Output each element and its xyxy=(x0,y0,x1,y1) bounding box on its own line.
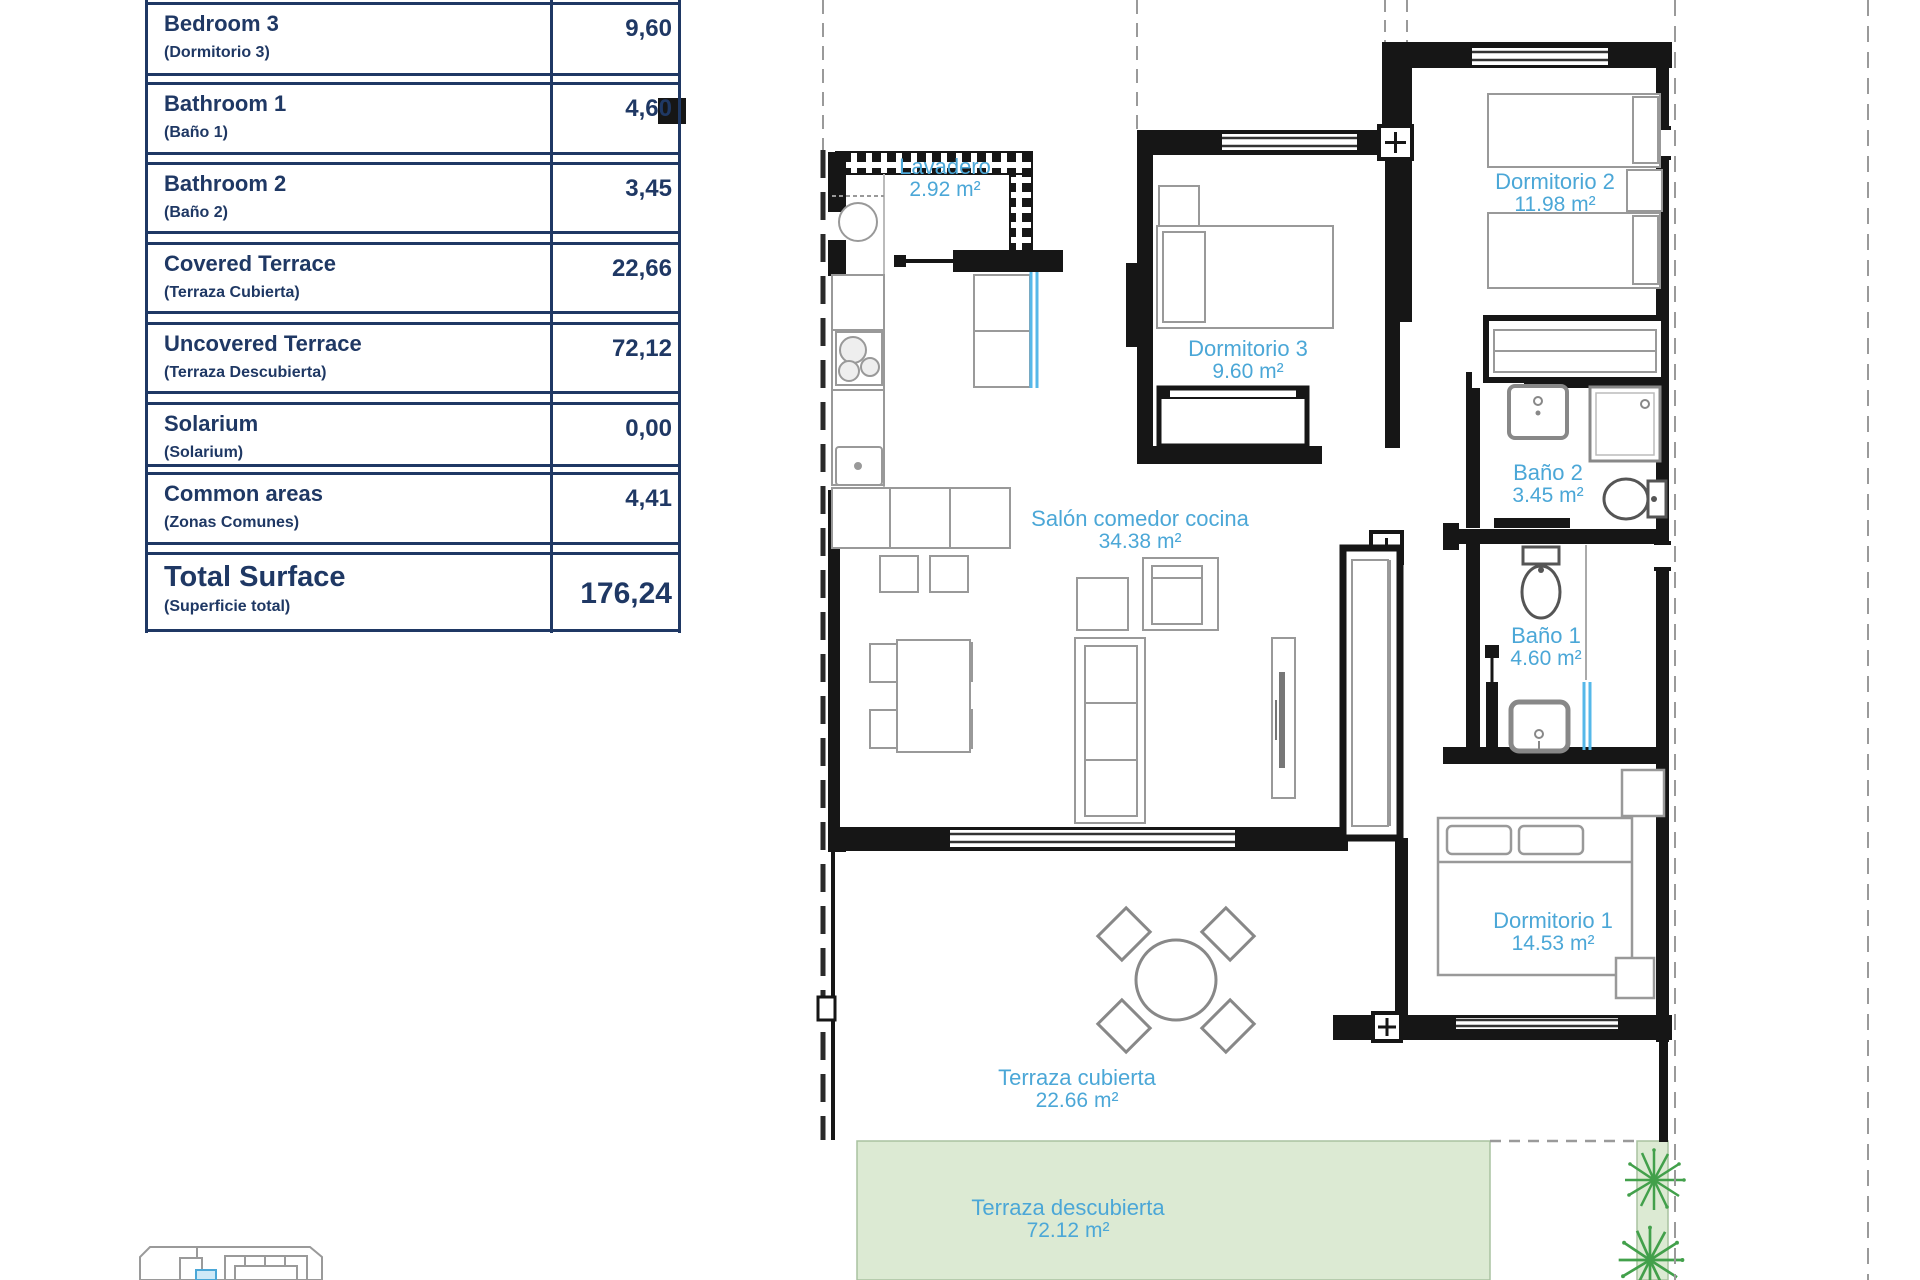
row-value: 4,41 xyxy=(550,485,672,513)
row-value: 22,66 xyxy=(550,255,672,283)
terrace-gate xyxy=(818,997,835,1020)
cooktop-icon xyxy=(836,332,882,385)
row-value: 0,00 xyxy=(550,415,672,443)
row-name-en: Bathroom 2 xyxy=(164,171,534,197)
room-label-lavadero: Lavadero 2.92 m² xyxy=(765,155,1125,201)
row-name-es: (Solarium) xyxy=(164,442,534,464)
row-name-es: (Dormitorio 3) xyxy=(164,42,534,64)
table-row: Uncovered Terrace (Terraza Descubierta) … xyxy=(148,322,678,394)
row-name-es: (Baño 2) xyxy=(164,202,534,224)
room-label-bano-1: Baño 1 4.60 m² xyxy=(1366,624,1726,670)
total-name-en: Total Surface xyxy=(164,561,534,593)
table-row: Bathroom 1 (Baño 1) 4,60 xyxy=(148,82,678,155)
key-plan xyxy=(140,1247,322,1280)
room-label-bano-2: Baño 2 3.45 m² xyxy=(1368,461,1728,507)
dining-table-set xyxy=(870,640,972,752)
chair xyxy=(1202,908,1254,960)
entrance-door xyxy=(894,250,1063,388)
armchair xyxy=(1143,558,1218,630)
table-row: Common areas (Zonas Comunes) 4,41 xyxy=(148,472,678,545)
row-value: 72,12 xyxy=(550,335,672,363)
bedroom3-furniture xyxy=(1157,186,1333,446)
room-label-terraza-cubierta: Terraza cubierta 22.66 m² xyxy=(897,1066,1257,1112)
toilet-icon xyxy=(1522,547,1560,618)
bar-stool xyxy=(880,556,918,592)
bedroom1-furniture xyxy=(1438,770,1664,998)
room-label-dormitorio-1: Dormitorio 1 14.53 m² xyxy=(1373,909,1733,955)
surface-table: Bedroom 3 (Dormitorio 3) 9,60 Bathroom 1… xyxy=(145,0,681,633)
row-name-es: (Baño 1) xyxy=(164,122,534,144)
table-total-row: Total Surface (Superficie total) 176,24 xyxy=(148,552,678,632)
round-table xyxy=(1136,940,1216,1020)
room-label-dormitorio-2: Dormitorio 2 11.98 m² xyxy=(1375,170,1735,216)
chair xyxy=(1098,1000,1150,1052)
row-name-en: Covered Terrace xyxy=(164,251,534,277)
floorplan-page: Lavadero 2.92 m² Dormitorio 2 11.98 m² D… xyxy=(0,0,1920,1280)
total-name-es: (Superficie total) xyxy=(164,596,534,618)
row-name-en: Uncovered Terrace xyxy=(164,331,534,357)
row-name-es: (Terraza Descubierta) xyxy=(164,362,534,384)
chair xyxy=(1202,1000,1254,1052)
wardrobe xyxy=(1622,770,1664,816)
sofa xyxy=(1075,638,1145,823)
room-label-terraza-descubierta: Terraza descubierta 72.12 m² xyxy=(888,1196,1248,1242)
row-value: 3,45 xyxy=(550,175,672,203)
sink-icon xyxy=(1509,386,1567,438)
key-plan-highlight xyxy=(196,1270,216,1280)
room-label-dormitorio-3: Dormitorio 3 9.60 m² xyxy=(1068,337,1428,383)
single-bed xyxy=(1488,94,1660,167)
row-name-en: Solarium xyxy=(164,411,534,437)
table-row: Bedroom 3 (Dormitorio 3) 9,60 xyxy=(148,2,678,76)
table-row: Bathroom 2 (Baño 2) 3,45 xyxy=(148,162,678,234)
sink-icon xyxy=(1511,702,1568,751)
total-value: 176,24 xyxy=(550,577,672,611)
row-name-en: Bedroom 3 xyxy=(164,11,534,37)
room-label-salon: Salón comedor cocina 34.38 m² xyxy=(960,507,1320,553)
table-row: Solarium (Solarium) 0,00 xyxy=(148,402,678,467)
living-room-furniture xyxy=(1075,558,1295,823)
terrace-table-set xyxy=(1098,908,1254,1052)
row-name-es: (Terraza Cubierta) xyxy=(164,282,534,304)
bedroom2-furniture xyxy=(1486,94,1664,380)
single-bed xyxy=(1488,213,1660,288)
tv-unit xyxy=(1272,638,1295,798)
row-value: 4,60 xyxy=(550,95,672,123)
table-row: Covered Terrace (Terraza Cubierta) 22,66 xyxy=(148,242,678,314)
washing-machine-icon xyxy=(839,203,877,241)
row-name-es: (Zonas Comunes) xyxy=(164,512,534,534)
row-name-en: Common areas xyxy=(164,481,534,507)
row-name-en: Bathroom 1 xyxy=(164,91,534,117)
chair xyxy=(1098,908,1150,960)
row-value: 9,60 xyxy=(550,15,672,43)
dresser xyxy=(1159,388,1307,446)
closet xyxy=(1486,318,1664,380)
hall-wardrobe xyxy=(1343,548,1400,838)
door-swing xyxy=(1584,682,1590,750)
bar-stool xyxy=(930,556,968,592)
side-table xyxy=(1077,578,1128,630)
nightstand xyxy=(1616,958,1654,998)
shower-icon xyxy=(1590,387,1660,461)
bed xyxy=(1157,226,1333,328)
table xyxy=(897,640,970,752)
nightstand xyxy=(1159,186,1199,226)
kitchen-sink-icon xyxy=(836,447,882,485)
